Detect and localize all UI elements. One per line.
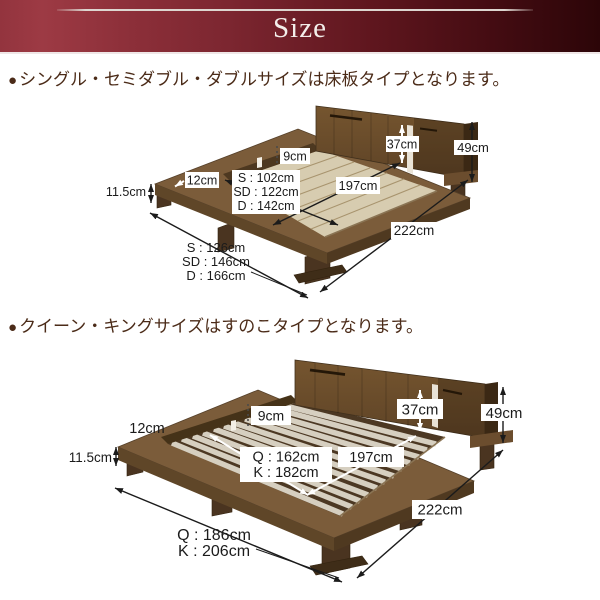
dim-total-height: 49cm bbox=[457, 140, 489, 155]
header-rule bbox=[57, 9, 533, 11]
page-root: { "header": { "title": "Size" }, "sectio… bbox=[0, 0, 600, 600]
note-slat-type: ●クイーン・キングサイズはすのこタイプとなります。 bbox=[8, 315, 592, 340]
dim-headboard-height: 37cm bbox=[387, 138, 418, 152]
note-text: クイーン・キングサイズはすのこタイプとなります。 bbox=[19, 317, 423, 336]
dim-outer-width-d: D : 166cm bbox=[186, 268, 245, 283]
dim-total-length: 222cm bbox=[417, 502, 462, 519]
note-text: シングル・セミダブル・ダブルサイズは床板タイプとなります。 bbox=[19, 70, 509, 89]
header-banner: Size bbox=[0, 0, 600, 54]
slat-bed-diagram: Q : 162cm K : 182cm 197cm 9cm 12cm 11.5c… bbox=[0, 340, 600, 600]
dim-rail-height: 9cm bbox=[258, 408, 284, 424]
rail-clip bbox=[257, 157, 262, 168]
note-floorboard-type: ●シングル・セミダブル・ダブルサイズは床板タイプとなります。 bbox=[8, 68, 592, 93]
dim-outer-width-sd: SD : 146cm bbox=[182, 254, 250, 269]
dim-total-length: 222cm bbox=[394, 223, 435, 238]
rail-clip bbox=[231, 420, 236, 431]
dim-rim-width: 12cm bbox=[187, 174, 218, 188]
headboard-right-shade bbox=[438, 378, 485, 438]
dim-inner-width-sd: SD : 122cm bbox=[233, 185, 298, 199]
dim-headboard-height: 37cm bbox=[402, 402, 439, 419]
dim-rail-height: 9cm bbox=[283, 150, 307, 164]
dim-frame-height: 11.5cm bbox=[106, 185, 146, 199]
dim-outer-width-q: Q : 186cm bbox=[177, 527, 251, 544]
dim-inner-width-s: S : 102cm bbox=[238, 171, 294, 185]
dim-outer-width-s: S : 126cm bbox=[187, 240, 246, 255]
dim-inner-width-k: K : 182cm bbox=[253, 465, 318, 481]
bullet-icon: ● bbox=[8, 73, 17, 89]
dim-rim-width: 12cm bbox=[129, 421, 164, 437]
dim-inner-width-d: D : 142cm bbox=[238, 199, 295, 213]
bullet-icon: ● bbox=[8, 320, 17, 336]
page-title: Size bbox=[0, 14, 600, 43]
dim-inner-length: 197cm bbox=[349, 450, 393, 466]
floorboard-bed-diagram: S : 102cm SD : 122cm D : 142cm 197cm 9cm… bbox=[0, 95, 600, 310]
dim-total-height: 49cm bbox=[486, 405, 523, 422]
dim-inner-width-q: Q : 162cm bbox=[253, 450, 320, 466]
dim-outer-width-k: K : 206cm bbox=[178, 543, 250, 560]
dim-inner-length: 197cm bbox=[338, 178, 377, 193]
dim-frame-height: 11.5cm bbox=[69, 450, 112, 465]
